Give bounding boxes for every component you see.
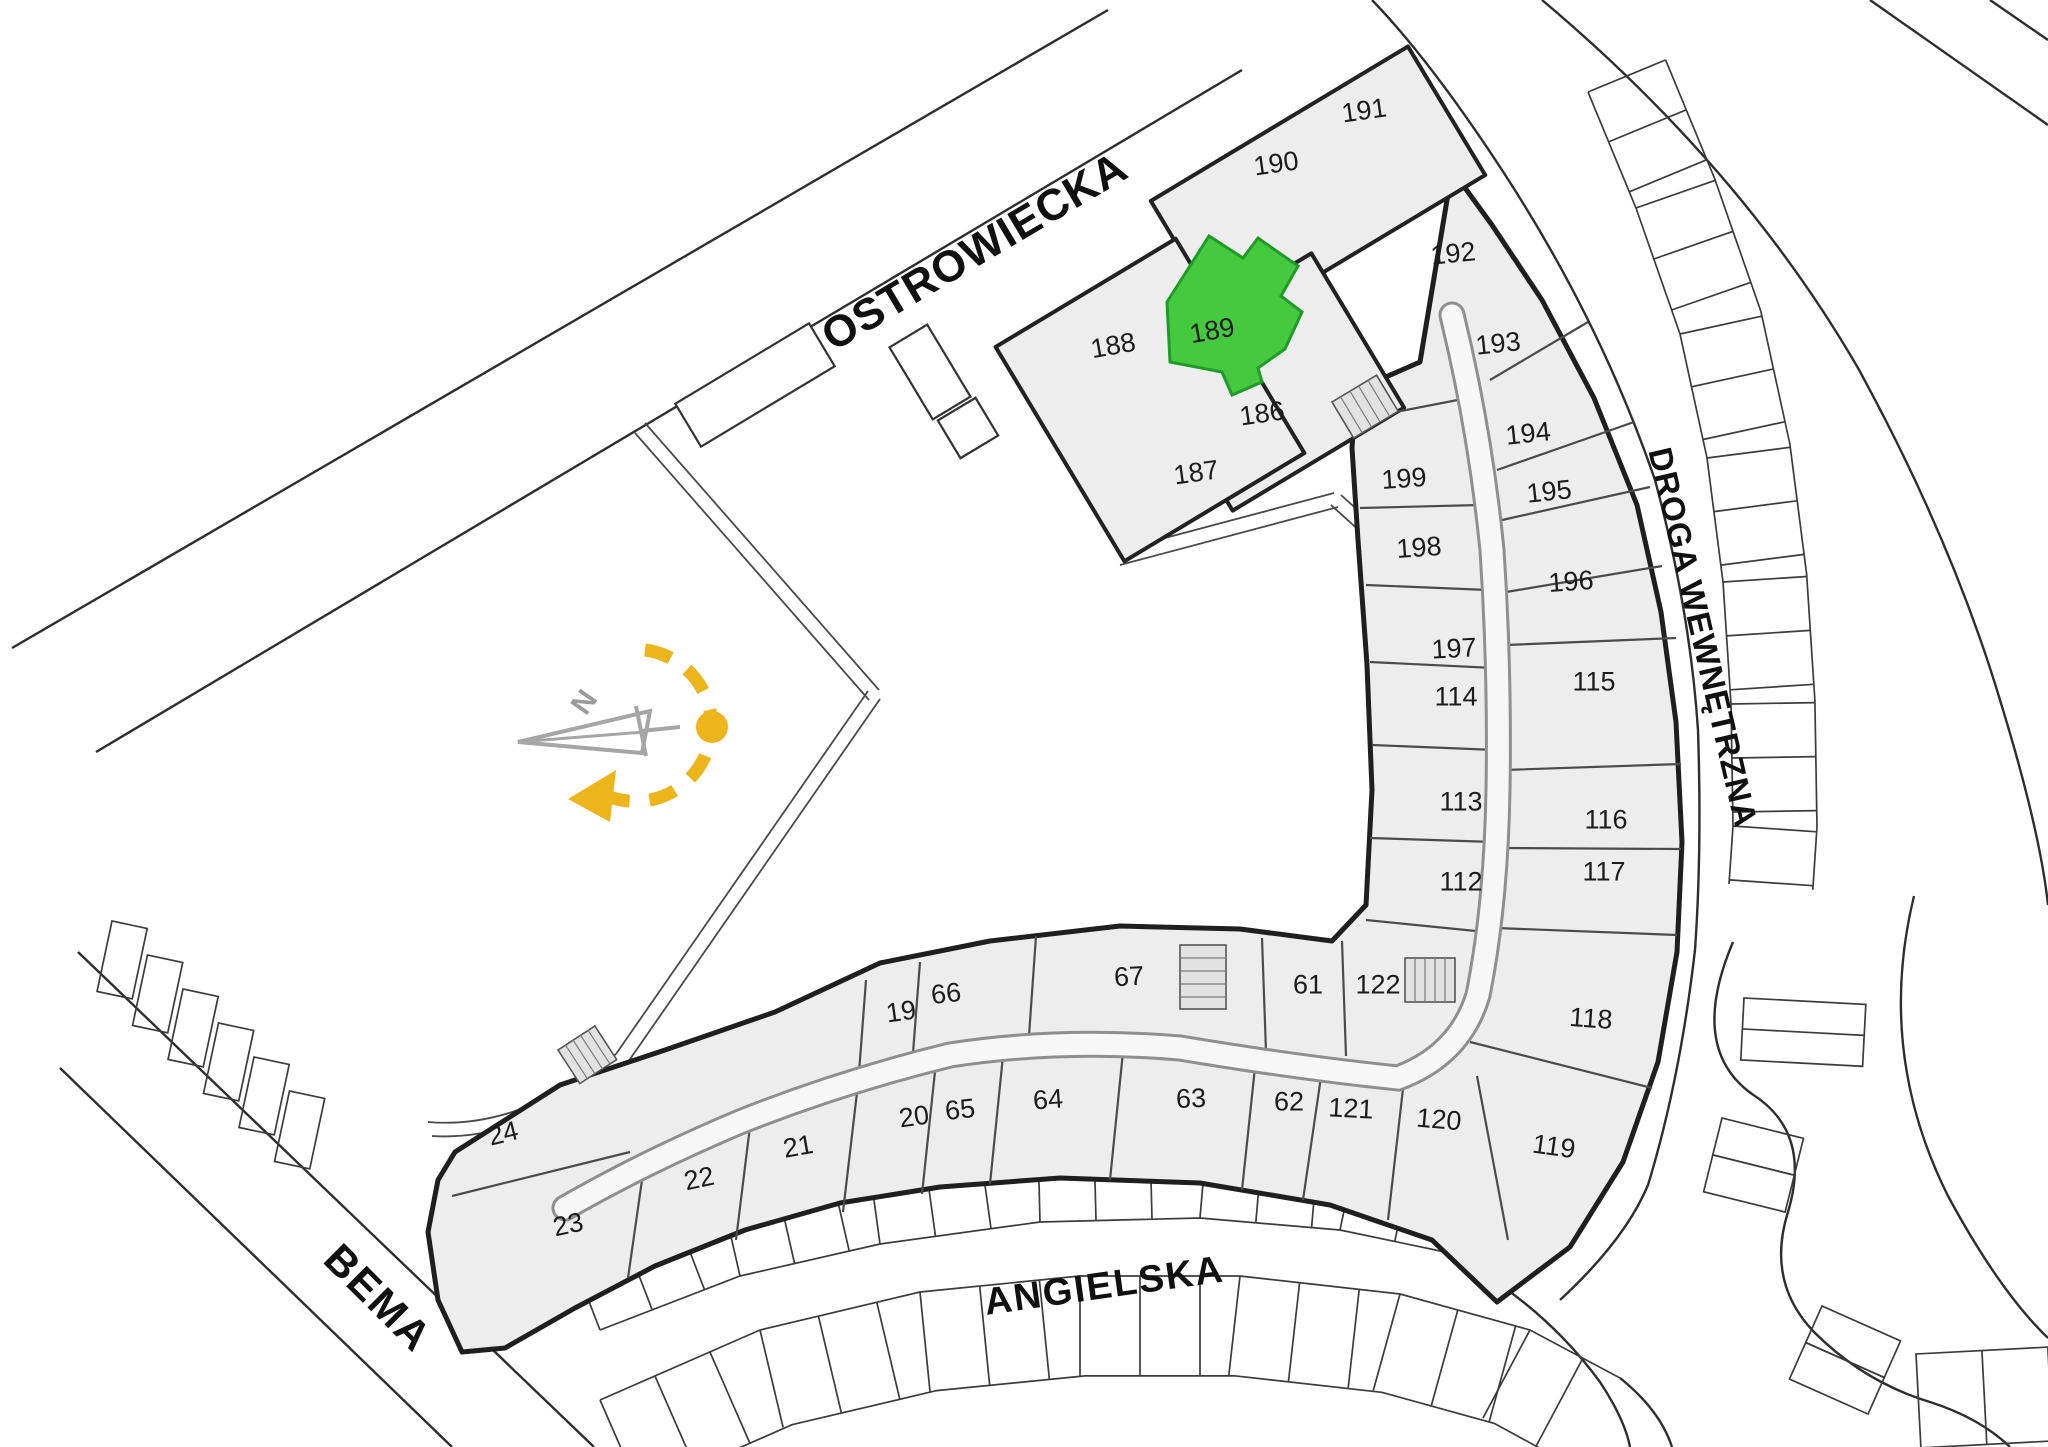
unit-label-67[interactable]: 67 [1113,961,1145,993]
unit-label-191[interactable]: 191 [1340,92,1389,128]
street-label-angielska: ANGIELSKA [982,1248,1227,1323]
unit-label-63[interactable]: 63 [1175,1083,1206,1114]
unit-label-121[interactable]: 121 [1328,1092,1375,1124]
unit-label-199[interactable]: 199 [1381,462,1428,495]
compass-dot [696,711,728,743]
unit-label-113[interactable]: 113 [1439,786,1482,816]
unit-label-197[interactable]: 197 [1431,632,1478,664]
unit-label-115[interactable]: 115 [1572,666,1615,696]
unit-label-21[interactable]: 21 [781,1129,816,1164]
unit-label-122[interactable]: 122 [1355,969,1400,999]
unit-label-195[interactable]: 195 [1525,474,1573,509]
unit-label-20[interactable]: 20 [897,1100,931,1134]
parking-stalls-bema [97,921,325,1169]
unit-label-62[interactable]: 62 [1274,1086,1304,1116]
unit-label-64[interactable]: 64 [1032,1083,1064,1115]
unit-label-116[interactable]: 116 [1584,804,1627,834]
unit-label-198[interactable]: 198 [1396,531,1443,564]
page: N OSTROWIECKADROGA WEWNĘTRZNAANGIELSKABE… [0,0,2048,1447]
unit-label-112[interactable]: 112 [1439,866,1482,896]
site-plan-svg: N OSTROWIECKADROGA WEWNĘTRZNAANGIELSKABE… [0,0,2048,1447]
unit-label-190[interactable]: 190 [1252,145,1301,181]
unit-label-186[interactable]: 186 [1238,395,1287,431]
compass-north-letter: N [565,684,604,721]
unit-label-119[interactable]: 119 [1531,1129,1578,1165]
compass-arrowhead-icon [568,770,616,822]
unit-label-117[interactable]: 117 [1582,856,1625,886]
unit-label-193[interactable]: 193 [1474,326,1522,361]
unit-label-114[interactable]: 114 [1434,681,1477,711]
unit-label-196[interactable]: 196 [1548,565,1595,598]
unit-label-61[interactable]: 61 [1293,969,1323,999]
unit-label-22[interactable]: 22 [681,1161,717,1197]
unit-label-19[interactable]: 19 [884,995,918,1029]
compass: N [518,650,728,822]
unit-label-65[interactable]: 65 [944,1093,977,1126]
unit-label-120[interactable]: 120 [1415,1103,1463,1137]
unit-label-192[interactable]: 192 [1429,236,1477,271]
street-label-bema: BEMA [315,1235,441,1361]
unit-label-187[interactable]: 187 [1172,454,1221,490]
unit-label-23[interactable]: 23 [550,1207,586,1243]
unit-label-118[interactable]: 118 [1568,1002,1613,1035]
unit-label-194[interactable]: 194 [1504,416,1552,451]
unit-label-66[interactable]: 66 [930,977,963,1010]
